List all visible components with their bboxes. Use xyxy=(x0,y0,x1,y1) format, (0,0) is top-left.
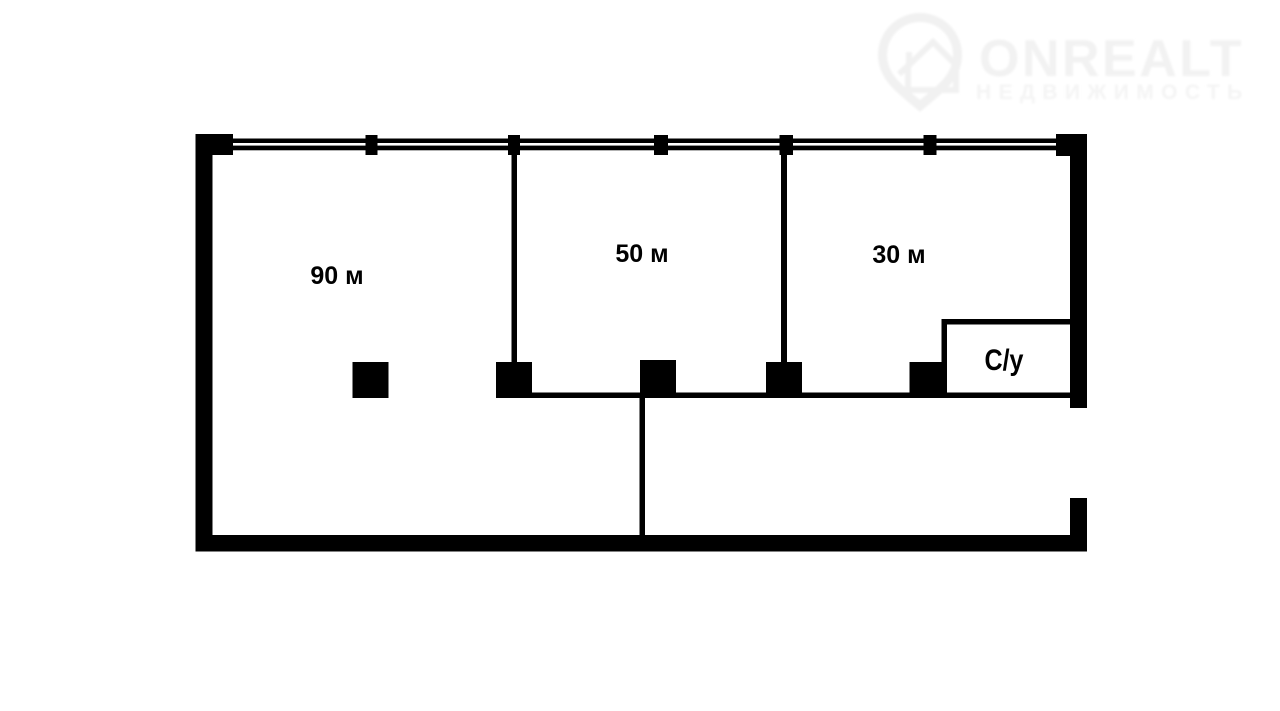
svg-text:50 м: 50 м xyxy=(615,240,668,268)
svg-text:30 м: 30 м xyxy=(872,241,925,269)
svg-text:С/у: С/у xyxy=(985,344,1024,377)
svg-text:90 м: 90 м xyxy=(310,262,363,290)
svg-text:НЕДВИЖИМОСТЬ: НЕДВИЖИМОСТЬ xyxy=(976,81,1250,104)
svg-text:ONREALT: ONREALT xyxy=(979,30,1244,88)
